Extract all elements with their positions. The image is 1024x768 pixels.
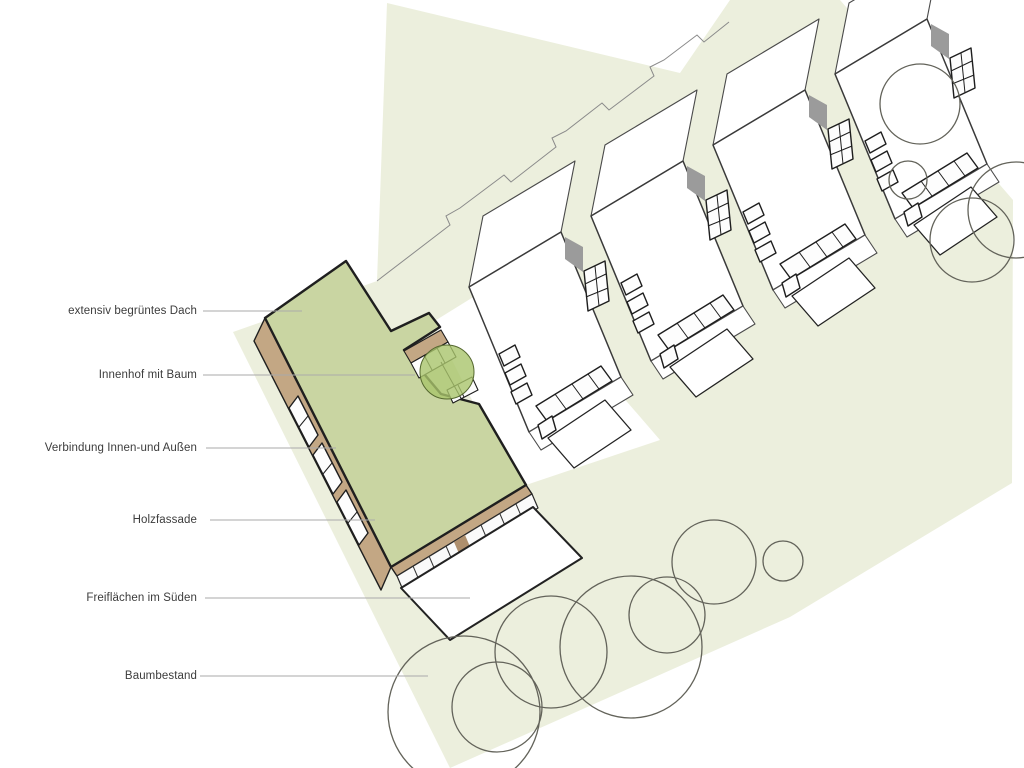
label-extensiv-begruentes-dach: extensiv begrüntes Dach: [0, 304, 197, 318]
label-innenhof-mit-baum: Innenhof mit Baum: [0, 368, 197, 382]
label-baumbestand: Baumbestand: [0, 669, 197, 683]
label-freiflaechen-im-sueden: Freiflächen im Süden: [0, 591, 197, 605]
label-verbindung-innen-und-aussen: Verbindung Innen-und Außen: [0, 441, 197, 455]
label-holzfassade: Holzfassade: [0, 513, 197, 527]
site-plan-diagram: extensiv begrüntes Dach Innenhof mit Bau…: [0, 0, 1024, 768]
courtyard-tree: [420, 345, 474, 399]
diagram-canvas: [0, 0, 1024, 768]
